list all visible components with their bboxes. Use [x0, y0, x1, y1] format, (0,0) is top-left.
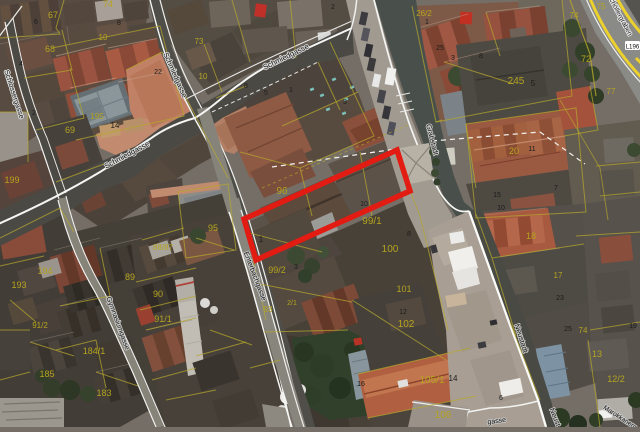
svg-text:99/1: 99/1 — [362, 216, 382, 227]
svg-text:91/2: 91/2 — [32, 321, 48, 330]
svg-text:183: 183 — [96, 388, 111, 398]
svg-text:20: 20 — [509, 146, 519, 156]
svg-text:23: 23 — [556, 295, 564, 302]
svg-text:101: 101 — [396, 284, 411, 294]
svg-text:102: 102 — [398, 319, 415, 330]
svg-text:96: 96 — [276, 186, 288, 197]
svg-text:3: 3 — [343, 99, 347, 106]
svg-text:16: 16 — [357, 381, 365, 388]
svg-text:90: 90 — [153, 289, 163, 299]
svg-text:68: 68 — [45, 44, 55, 54]
svg-text:199: 199 — [4, 175, 19, 185]
svg-text:15: 15 — [493, 192, 501, 199]
svg-text:2: 2 — [331, 4, 335, 11]
svg-text:8: 8 — [244, 83, 248, 90]
svg-text:25: 25 — [564, 326, 572, 333]
svg-text:3: 3 — [451, 55, 455, 62]
svg-text:1: 1 — [289, 87, 293, 94]
svg-text:10: 10 — [497, 205, 505, 212]
svg-text:105/1: 105/1 — [419, 375, 444, 386]
svg-text:26/2: 26/2 — [416, 9, 432, 18]
svg-text:88/87: 88/87 — [153, 243, 174, 252]
svg-text:75: 75 — [597, 2, 606, 11]
svg-text:5: 5 — [264, 90, 268, 97]
svg-text:10: 10 — [360, 201, 368, 208]
svg-text:74: 74 — [570, 11, 579, 20]
svg-text:3: 3 — [294, 264, 298, 271]
svg-text:2/1: 2/1 — [287, 300, 297, 307]
svg-text:12/2: 12/2 — [607, 374, 625, 384]
svg-text:25: 25 — [436, 45, 444, 52]
svg-text:77: 77 — [607, 87, 616, 96]
svg-text:22: 22 — [154, 69, 162, 76]
svg-text:2: 2 — [32, 110, 36, 117]
svg-text:1: 1 — [425, 19, 429, 26]
svg-text:13: 13 — [592, 349, 602, 359]
svg-text:245: 245 — [508, 76, 525, 87]
svg-text:95: 95 — [208, 223, 218, 233]
svg-text:17: 17 — [554, 271, 563, 280]
svg-text:195: 195 — [90, 112, 104, 121]
svg-text:89: 89 — [125, 272, 135, 282]
svg-text:4: 4 — [19, 61, 23, 68]
svg-text:6: 6 — [499, 395, 503, 402]
svg-text:184/1: 184/1 — [83, 346, 106, 356]
svg-text:194: 194 — [37, 266, 52, 276]
svg-text:14: 14 — [111, 121, 120, 130]
svg-text:91/1: 91/1 — [154, 314, 172, 324]
svg-text:93: 93 — [264, 305, 273, 314]
svg-text:100: 100 — [382, 244, 399, 255]
svg-text:10: 10 — [99, 33, 108, 42]
svg-text:7: 7 — [554, 185, 558, 192]
svg-text:69: 69 — [65, 125, 75, 135]
svg-text:5: 5 — [531, 79, 536, 88]
svg-text:10: 10 — [199, 72, 208, 81]
svg-text:8: 8 — [117, 20, 121, 27]
svg-text:99/2: 99/2 — [268, 265, 286, 275]
svg-text:185: 185 — [39, 369, 54, 379]
svg-text:73: 73 — [195, 37, 204, 46]
svg-text:14: 14 — [449, 374, 458, 383]
svg-text:106: 106 — [435, 410, 452, 421]
svg-text:67: 67 — [48, 10, 58, 20]
svg-text:1: 1 — [259, 235, 264, 244]
svg-text:6: 6 — [34, 19, 38, 26]
svg-text:L196: L196 — [626, 43, 640, 50]
svg-text:12: 12 — [399, 309, 407, 316]
svg-text:11: 11 — [528, 146, 535, 153]
svg-text:74: 74 — [103, 0, 113, 9]
svg-text:8: 8 — [407, 231, 411, 238]
svg-text:19: 19 — [629, 323, 637, 330]
svg-text:74: 74 — [579, 326, 588, 335]
svg-text:18: 18 — [526, 231, 536, 241]
svg-text:193: 193 — [11, 280, 26, 290]
svg-text:8: 8 — [479, 53, 483, 60]
svg-text:72: 72 — [581, 54, 591, 64]
